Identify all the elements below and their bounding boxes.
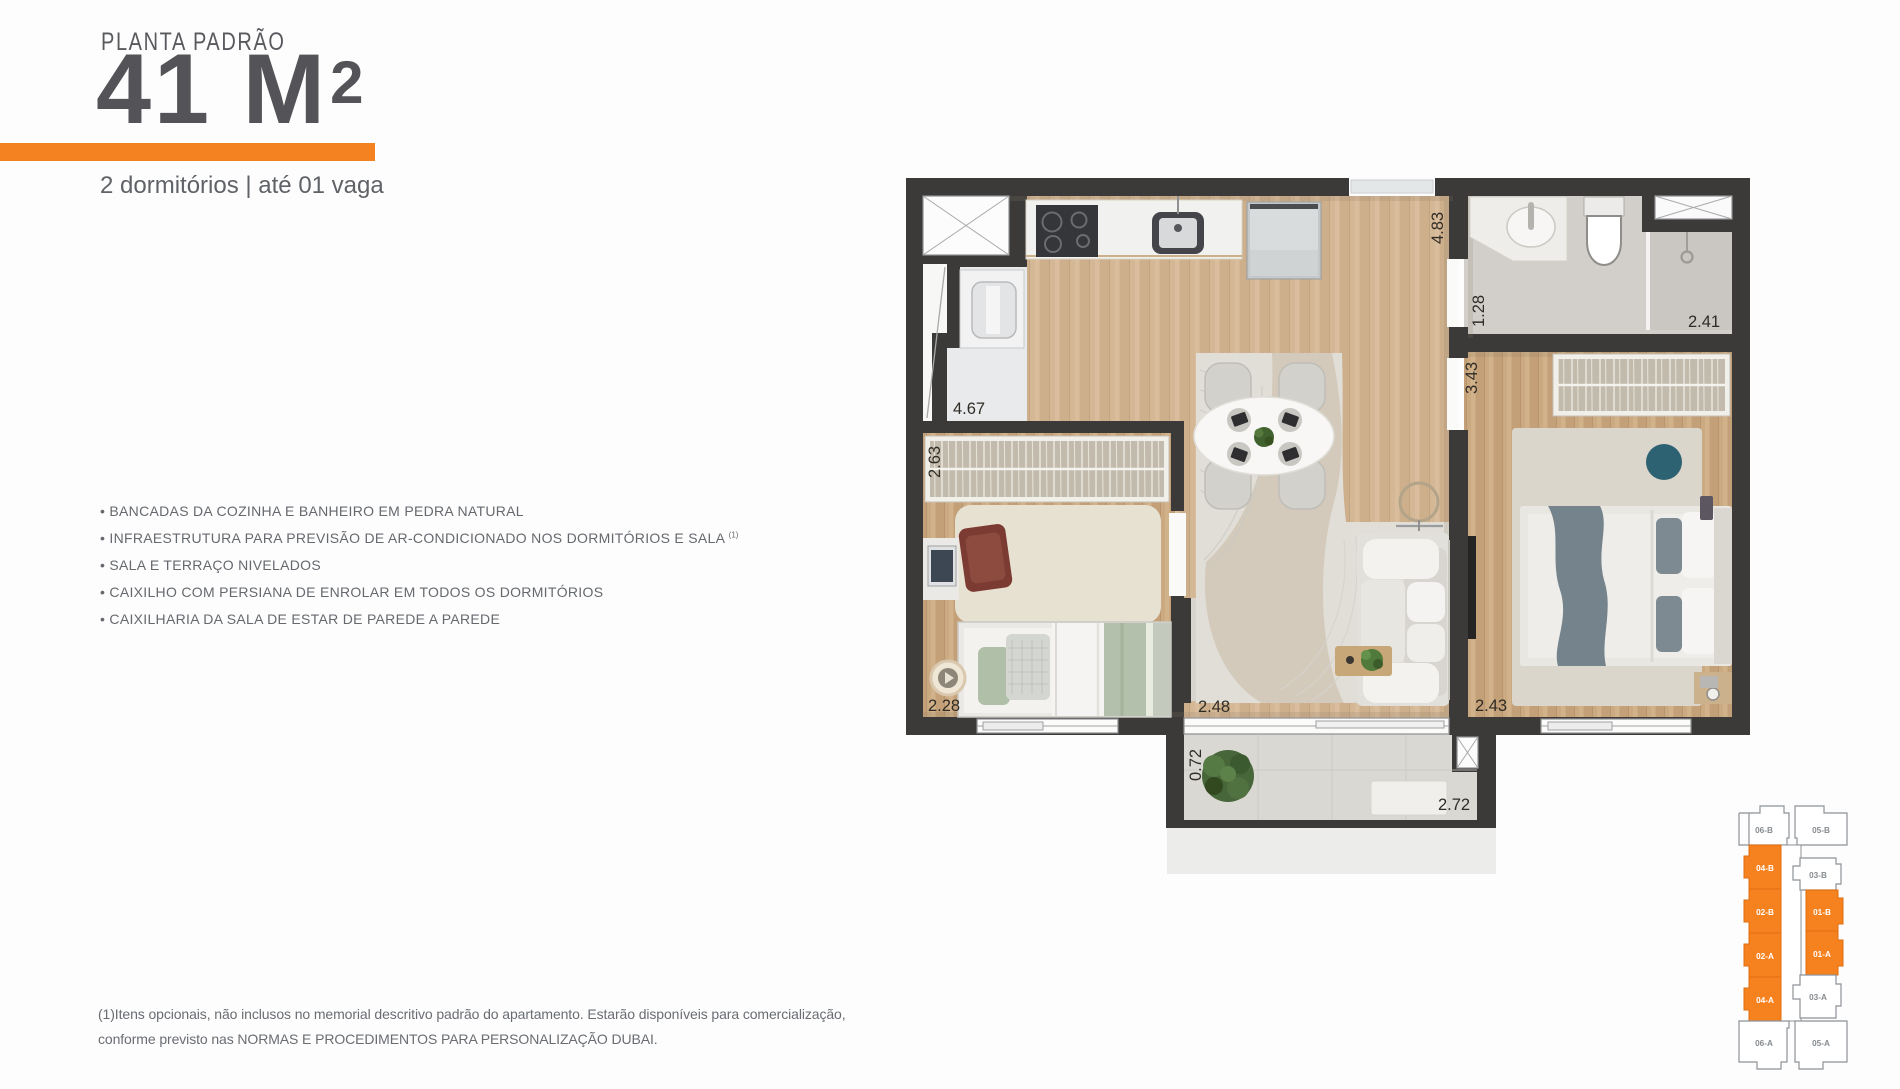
svg-text:2.41: 2.41 [1688,313,1720,331]
svg-text:03-B: 03-B [1809,871,1827,880]
svg-text:06-A: 06-A [1755,1039,1773,1048]
svg-text:02-B: 02-B [1756,908,1774,917]
svg-text:01-A: 01-A [1813,950,1831,959]
svg-text:05-B: 05-B [1812,826,1830,835]
svg-text:2.72: 2.72 [1438,796,1470,814]
svg-text:3.43: 3.43 [1463,362,1481,394]
svg-text:04-A: 04-A [1756,996,1774,1005]
svg-text:0.72: 0.72 [1187,749,1205,781]
svg-text:4.83: 4.83 [1429,212,1447,244]
svg-text:2.48: 2.48 [1198,698,1230,716]
svg-text:2.63: 2.63 [926,446,944,478]
svg-text:06-B: 06-B [1755,826,1773,835]
svg-text:03-A: 03-A [1809,993,1827,1002]
svg-text:04-B: 04-B [1756,864,1774,873]
svg-text:4.67: 4.67 [953,400,985,418]
svg-text:2.43: 2.43 [1475,697,1507,715]
svg-text:02-A: 02-A [1756,952,1774,961]
svg-text:2.28: 2.28 [928,697,960,715]
svg-text:05-A: 05-A [1812,1039,1830,1048]
svg-text:01-B: 01-B [1813,908,1831,917]
svg-text:1.28: 1.28 [1470,295,1488,327]
